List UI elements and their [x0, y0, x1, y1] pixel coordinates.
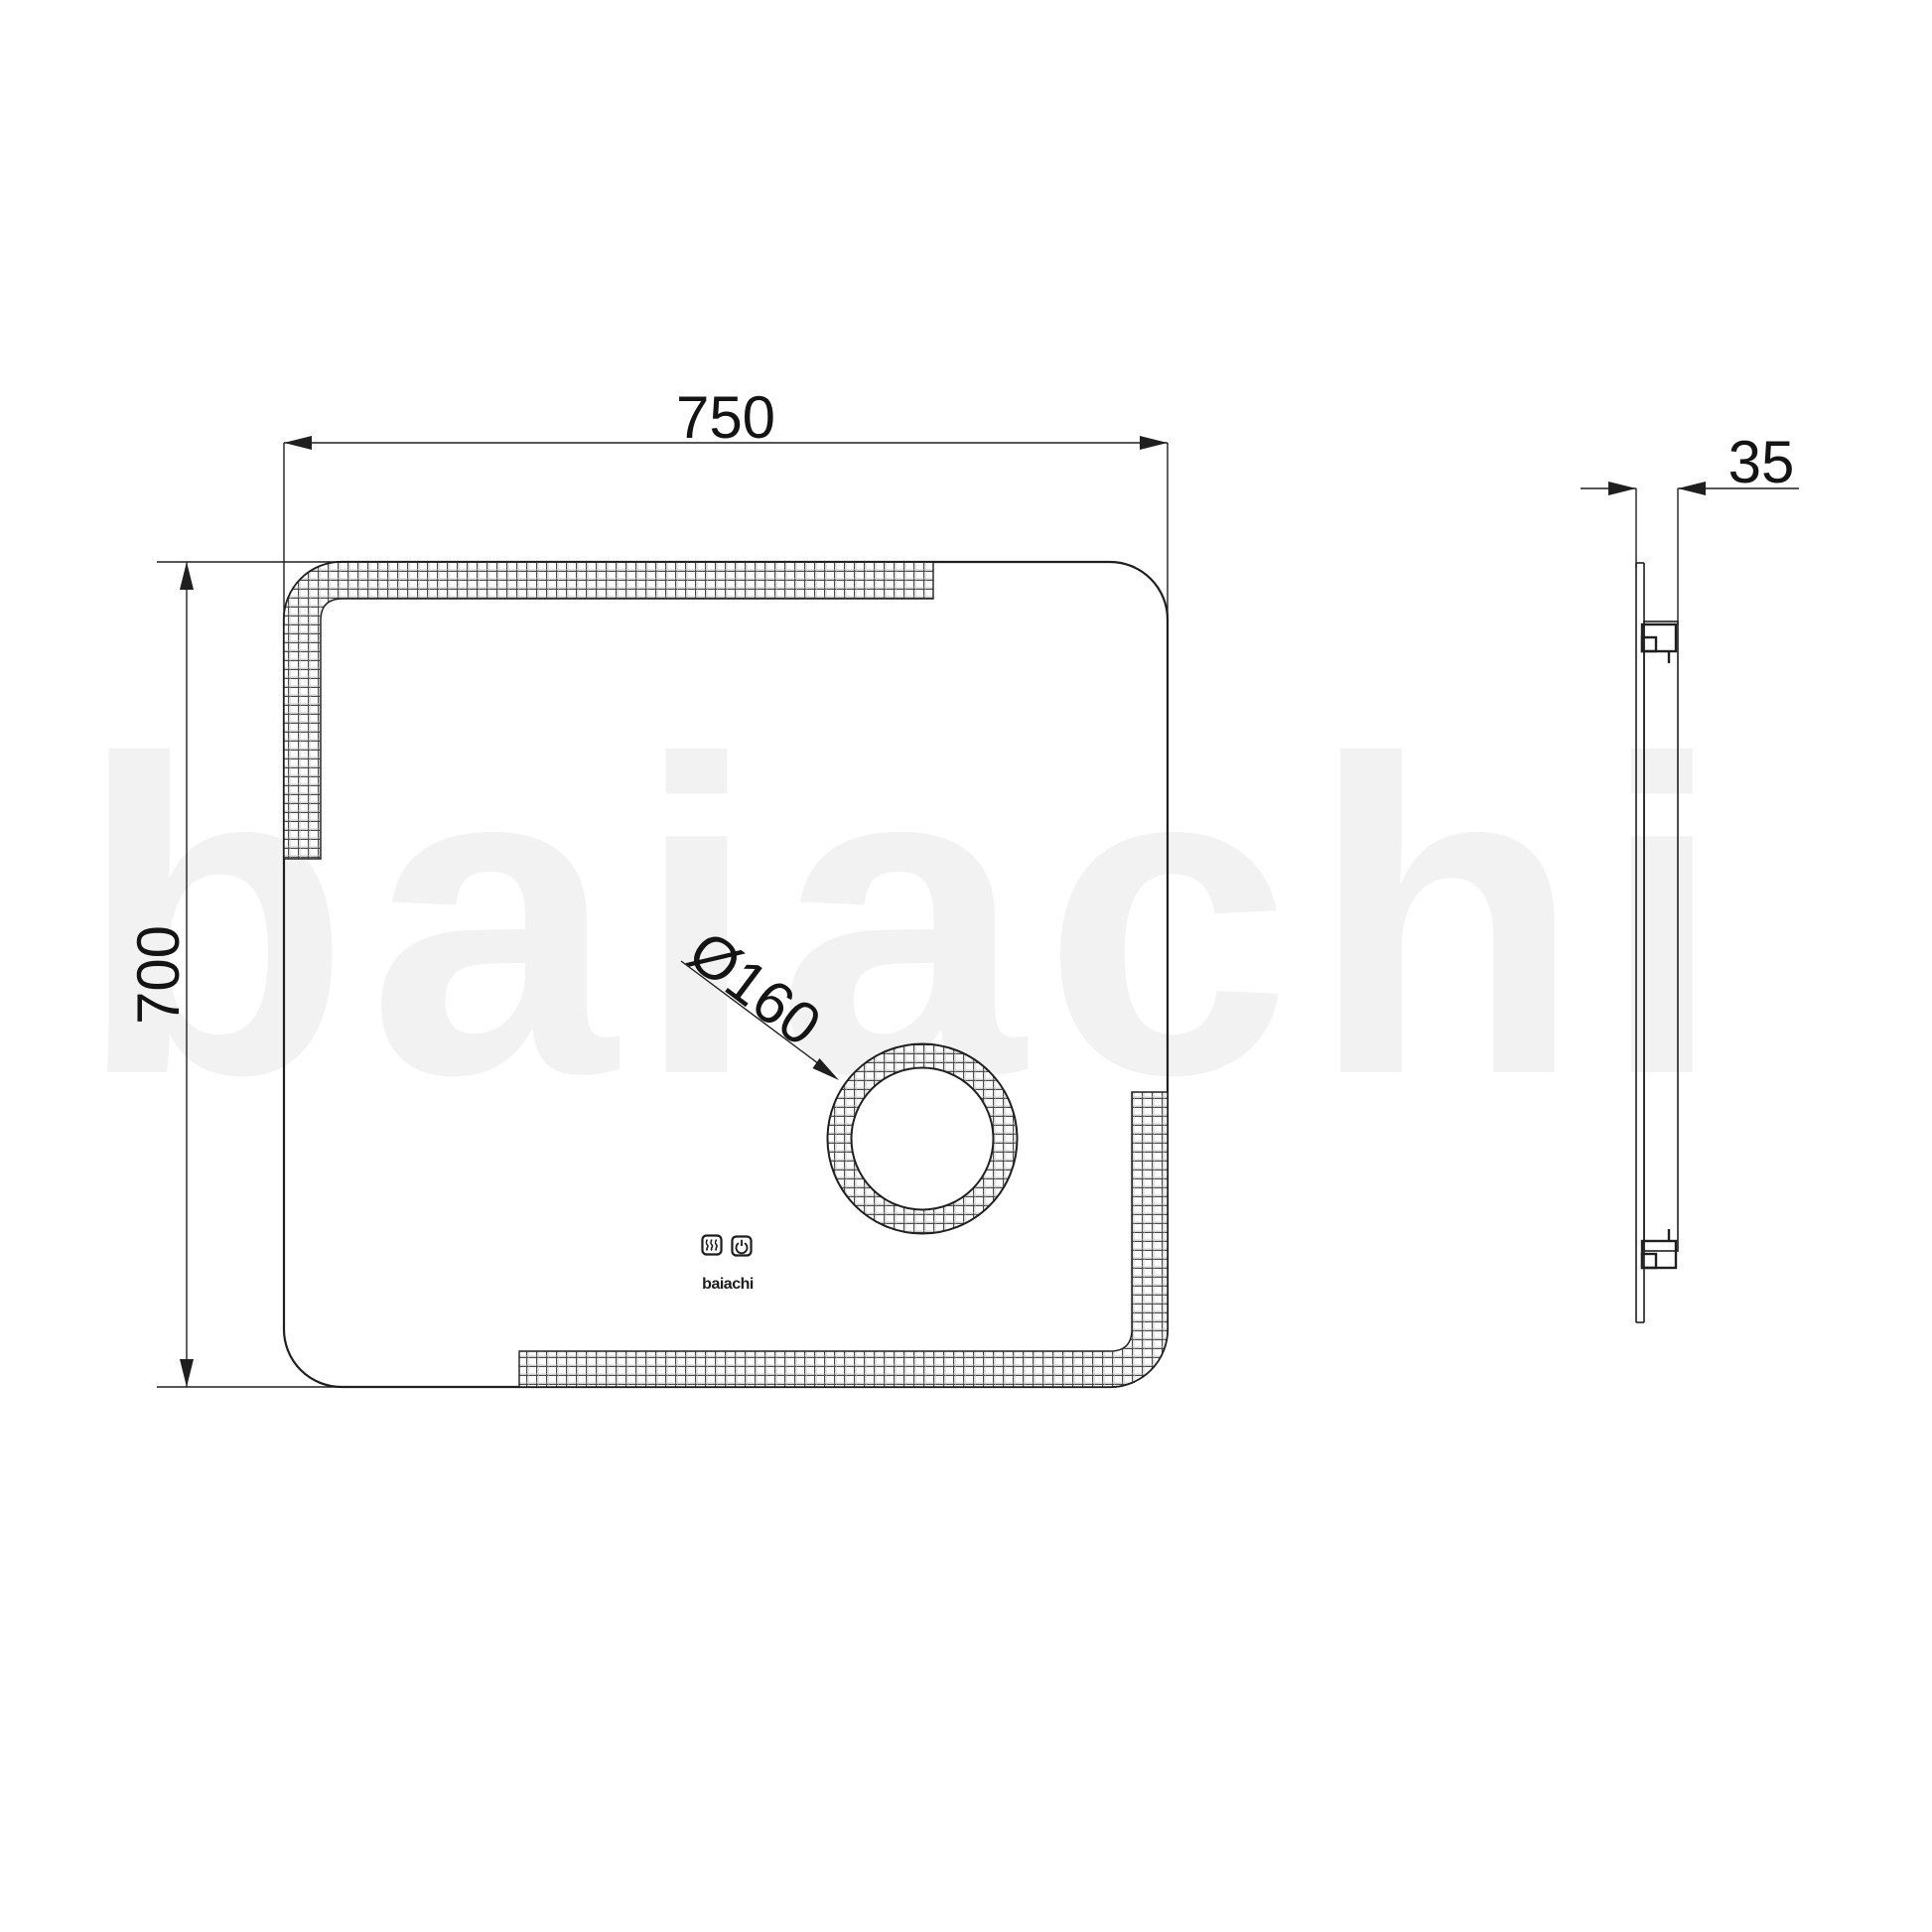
magnifier-ring — [828, 1044, 1018, 1234]
arrow-down-icon — [180, 1359, 194, 1387]
dim-width-label: 750 — [676, 388, 775, 448]
arrow-left-icon — [1678, 482, 1706, 495]
dim-height-label: 700 — [129, 925, 189, 1025]
led-strip-top-left — [284, 562, 933, 859]
arrow-right-icon — [1608, 482, 1636, 495]
side-bracket-bottom — [1642, 1229, 1676, 1268]
brand-logo-text: baiachi — [702, 1277, 754, 1293]
demister-icon — [701, 1234, 723, 1256]
dim-depth-label: 35 — [1728, 433, 1795, 492]
arrow-right-icon — [1140, 436, 1168, 450]
arrow-up-icon — [180, 562, 194, 590]
side-glass-panel — [1636, 563, 1644, 1322]
side-view — [1636, 563, 1678, 1322]
technical-drawing — [0, 0, 1932, 1932]
side-bracket-top — [1642, 624, 1676, 663]
magnifier-inner-circle — [852, 1068, 994, 1210]
power-icon — [731, 1235, 753, 1257]
dim-depth-35 — [1581, 482, 1799, 625]
side-back-frame — [1644, 621, 1678, 1251]
arrow-left-icon — [284, 436, 312, 450]
